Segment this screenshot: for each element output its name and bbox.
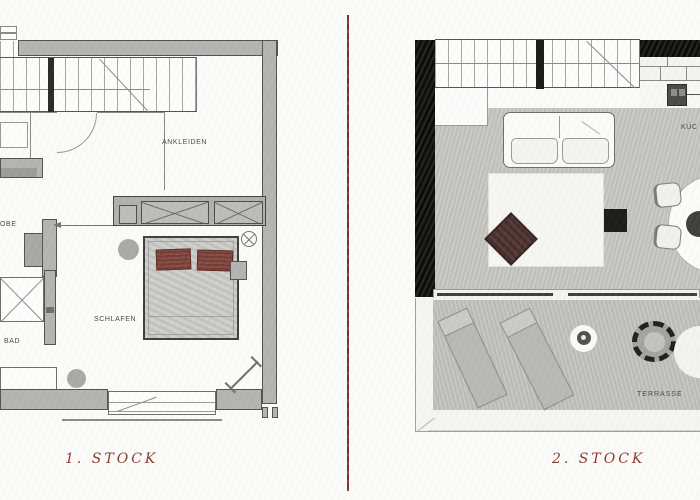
- kitchen-cabinets: [640, 57, 700, 81]
- stair-landing: [435, 88, 488, 126]
- sofa: [503, 112, 615, 168]
- caption-floor-2: 2. STOCK: [552, 451, 645, 467]
- wall-black-left: [415, 40, 435, 297]
- staircase: [435, 39, 640, 88]
- stove: [667, 84, 687, 106]
- cabinet-line: [686, 66, 687, 81]
- basket-chair: [632, 321, 676, 362]
- room-label-terrasse: TERRASSE: [637, 391, 683, 398]
- stair-divider-wall: [536, 40, 544, 89]
- sofa-cushion: [562, 138, 609, 164]
- stair-cut-line: [586, 41, 635, 88]
- terrace-outer-line: [428, 430, 700, 431]
- side-table-black: [604, 209, 627, 232]
- cabinet-line: [640, 66, 700, 67]
- stove-line: [687, 94, 700, 95]
- kettle-knob: [581, 335, 586, 340]
- stove-burner: [679, 89, 685, 96]
- glass-front-segment: [437, 293, 553, 296]
- basket-chair-cushion: [644, 332, 665, 352]
- stove-burner: [671, 89, 677, 96]
- caption-floor-1: 1. STOCK: [65, 451, 158, 467]
- sofa-back-divider: [559, 116, 560, 138]
- cabinet-line: [667, 57, 668, 66]
- dining-chair: [653, 224, 682, 251]
- sofa-throw-line: [581, 121, 600, 134]
- plan-floor-2: KÜC: [0, 0, 700, 500]
- glass-front-segment: [568, 293, 697, 296]
- room-label-kueche: KÜC: [681, 124, 698, 131]
- dining-chair: [653, 182, 682, 209]
- sofa-cushion: [511, 138, 558, 164]
- floorplan-sheet: ANKLEIDEN SCH: [0, 0, 700, 500]
- kitchen-wall: [640, 40, 700, 57]
- cabinet-line: [660, 66, 661, 81]
